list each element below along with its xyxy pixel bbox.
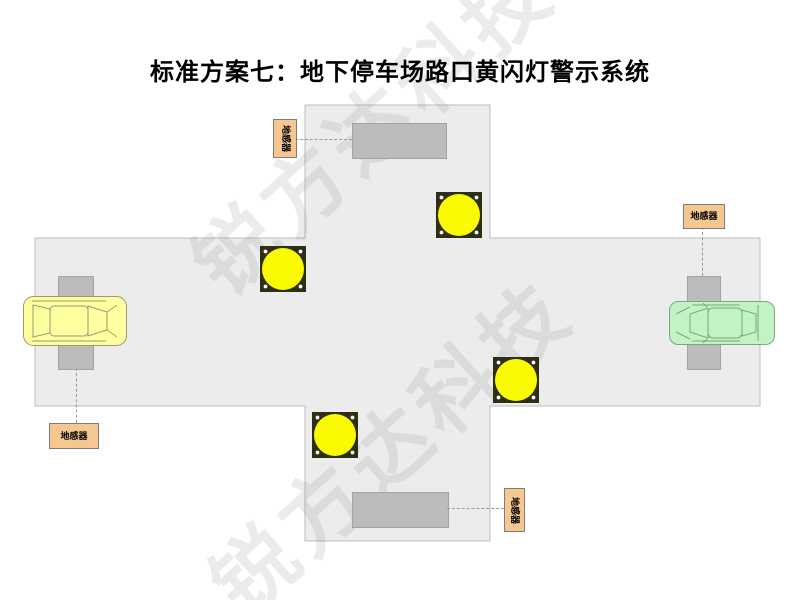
car-green-drawing bbox=[668, 300, 776, 346]
car-yellow-topview bbox=[22, 295, 128, 352]
dashed-connector-top-left bbox=[295, 139, 352, 140]
flash-light-west bbox=[260, 246, 306, 292]
car-yellow-drawing bbox=[22, 295, 128, 347]
sensor-label-text: 地感器 bbox=[690, 212, 717, 221]
page-title: 标准方案七：地下停车场路口黄闪灯警示系统 bbox=[0, 52, 800, 87]
flash-light-north bbox=[436, 192, 482, 238]
ground-sensor-bottom bbox=[352, 492, 449, 528]
sensor-label-text: 地感器 bbox=[60, 432, 87, 441]
dashed-connector-right bbox=[702, 227, 703, 276]
sensor-label-top-left: 地感器 bbox=[273, 119, 297, 158]
sensor-label-text: 地感器 bbox=[510, 496, 519, 523]
flash-light-south bbox=[312, 412, 358, 458]
dashed-connector-bottom-right bbox=[447, 508, 504, 509]
dashed-connector-bottom-left bbox=[76, 368, 77, 423]
ground-sensor-top bbox=[352, 123, 447, 159]
sensor-label-right: 地感器 bbox=[683, 204, 725, 229]
car-green-topview bbox=[668, 300, 776, 351]
sensor-label-bottom-left: 地感器 bbox=[49, 423, 99, 449]
flash-light-east bbox=[493, 357, 539, 403]
sensor-label-text: 地感器 bbox=[281, 125, 290, 152]
diagram-canvas: 锐方达科技 锐方达科技 标准方案七：地下停车场路口黄闪灯警示系统 bbox=[0, 0, 800, 600]
sensor-label-bottom-right: 地感器 bbox=[504, 488, 525, 532]
road-cross-shape bbox=[35, 105, 760, 541]
